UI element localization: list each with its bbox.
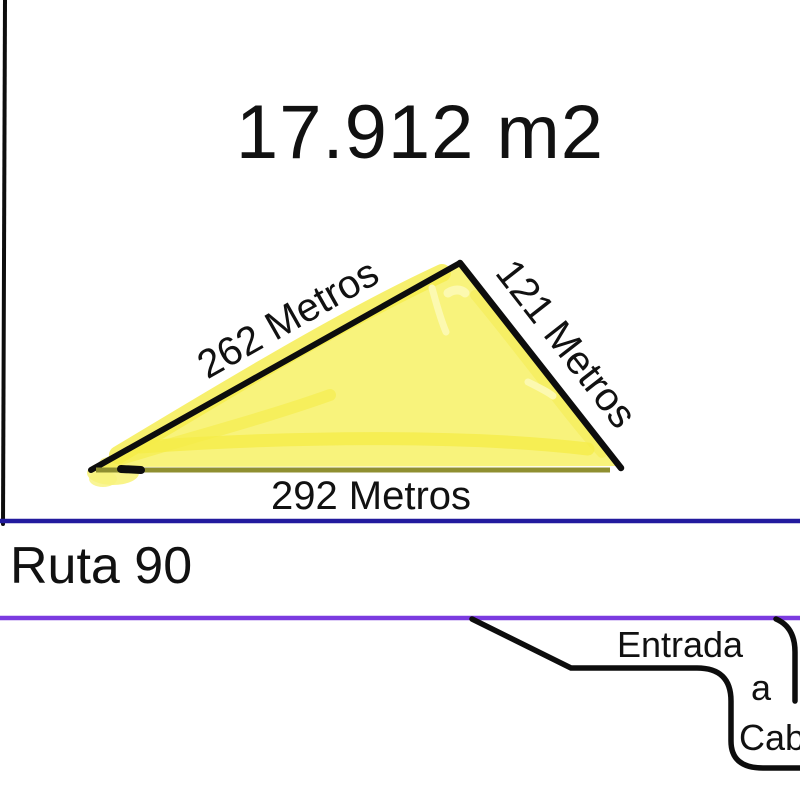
plot-bottom-edge-ink-blob [121,469,141,470]
highlighter-light-streak [448,290,465,293]
side-bottom-length-label: 292 Metros [271,476,471,516]
entrance-right-curve [776,619,795,701]
entrance-label-line1: Entrada [617,627,743,663]
plot-area-label: 17.912 m2 [236,95,604,171]
highlighter-overflow-blob [89,471,117,487]
entrance-label-line3: Cab [739,720,800,756]
route-90-label: Ruta 90 [10,540,192,592]
land-plot-sketch: 17.912 m2 262 Metros 121 Metros 292 Metr… [0,0,800,800]
entrance-label-line2: a [751,670,771,706]
left-border-line [3,0,5,524]
